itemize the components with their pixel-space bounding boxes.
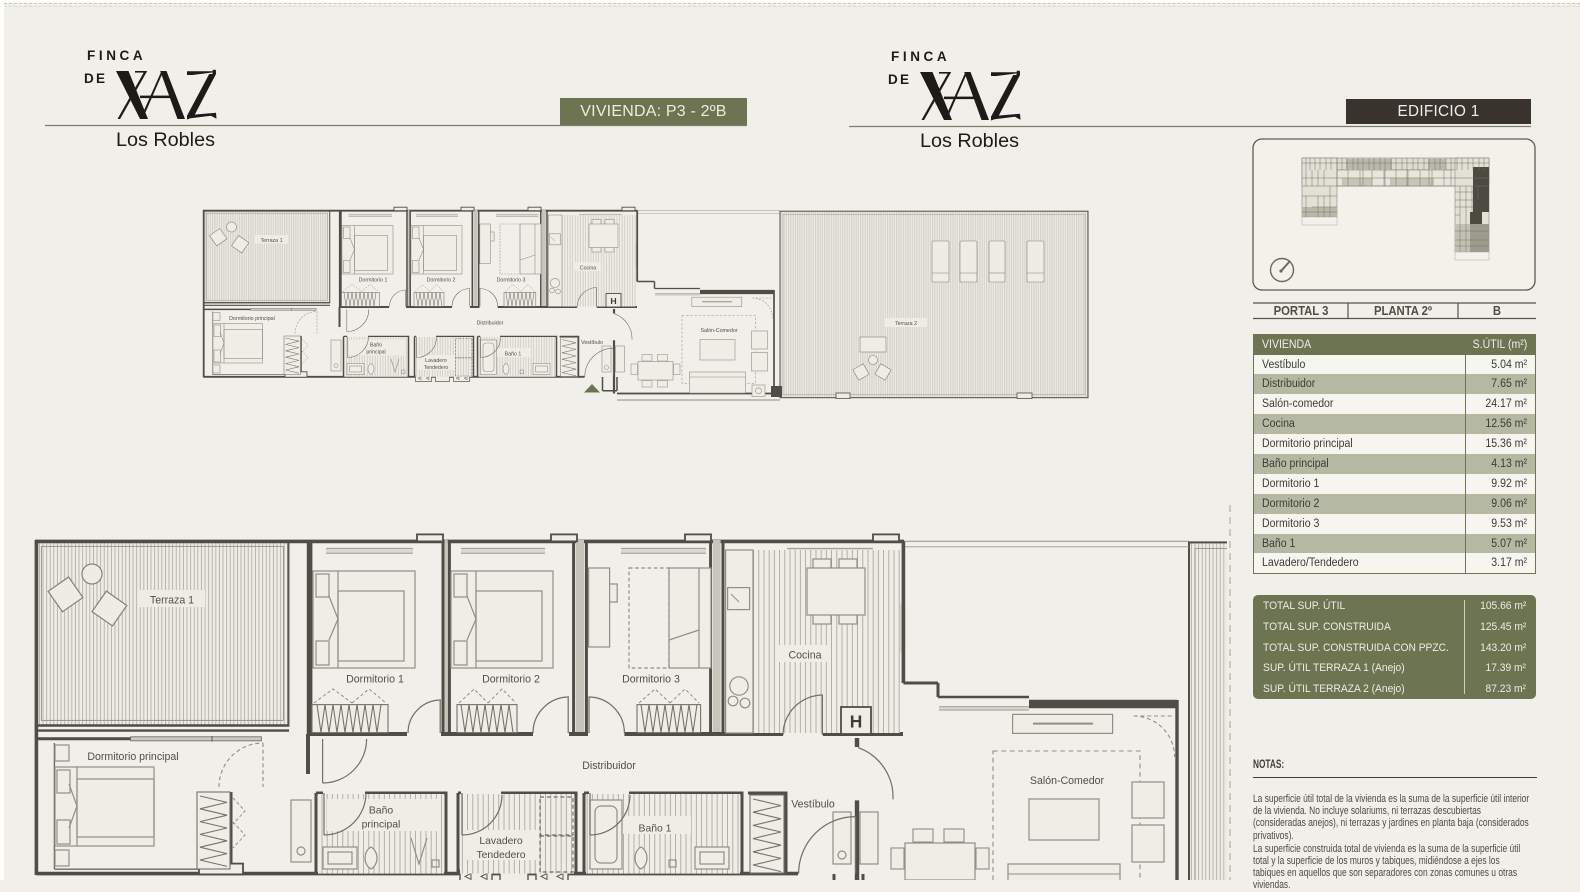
svg-text:PORTAL 3: PORTAL 3 xyxy=(1274,303,1329,318)
svg-text:PLANTA 2º: PLANTA 2º xyxy=(1374,303,1433,318)
svg-text:B: B xyxy=(1493,303,1501,318)
svg-text:Los Robles: Los Robles xyxy=(116,129,215,151)
svg-text:FINCA: FINCA xyxy=(87,48,146,63)
svg-text:DE: DE xyxy=(84,71,107,86)
